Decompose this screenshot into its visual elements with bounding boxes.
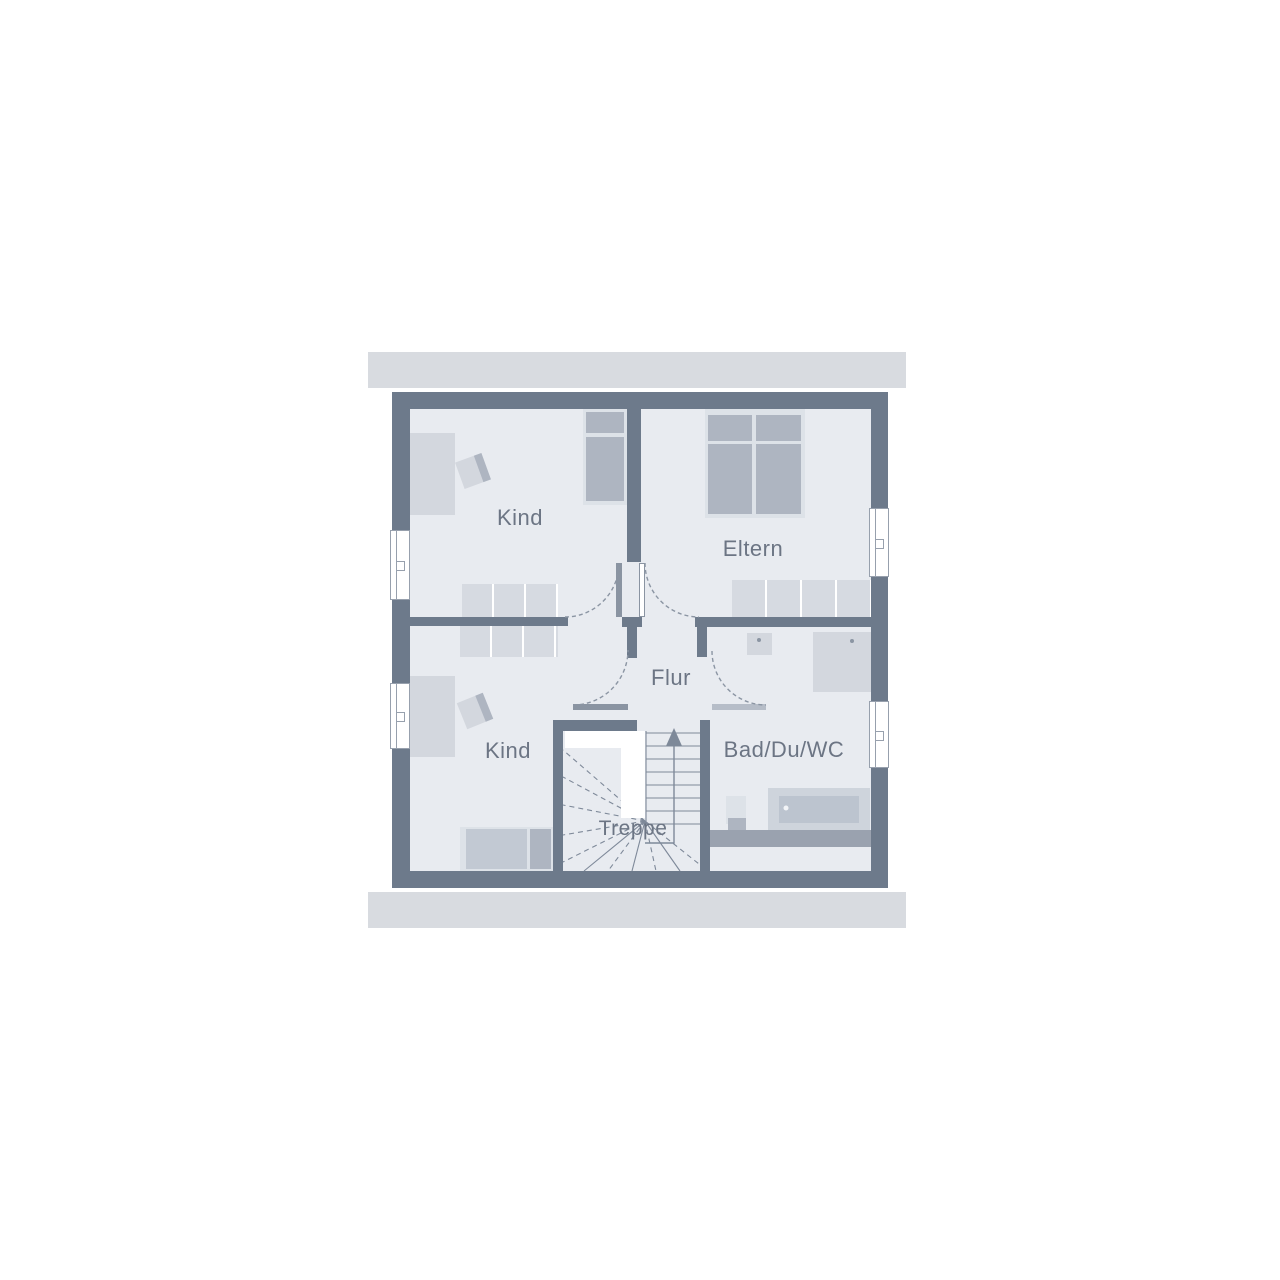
room-label-kind-top: Kind: [497, 505, 543, 531]
room-label-bad: Bad/Du/WC: [724, 737, 845, 763]
wardrobe: [732, 580, 871, 617]
washbasin: [747, 633, 772, 655]
wall-kind-kind-divider: [410, 617, 568, 626]
double-bed-mattress-right: [756, 444, 801, 514]
wall-stairwell-right: [700, 720, 710, 871]
wall-stairwell-top: [553, 720, 637, 731]
roof-edge-bottom: [368, 892, 906, 928]
double-bed-pillow-right: [756, 415, 801, 441]
bed: [460, 827, 553, 871]
window-handle: [396, 561, 405, 571]
bed-pillow: [530, 829, 551, 869]
bathtub: [768, 788, 870, 830]
room-label-flur: Flur: [651, 665, 691, 691]
window-handle: [875, 731, 884, 741]
bed-mattress: [466, 829, 527, 869]
door-leaf-bad: [712, 704, 766, 710]
bed-mattress: [586, 437, 624, 501]
double-bed-pillow-left: [708, 415, 752, 441]
shower: [813, 632, 871, 692]
window-left-upper: [390, 530, 410, 600]
door-leaf-kind-bottom: [573, 704, 628, 710]
window-right-upper: [869, 508, 889, 577]
double-bed: [705, 409, 805, 518]
wall-bad-knee: [710, 830, 871, 847]
wall-kind-eltern-divider: [627, 409, 641, 562]
wall-bad-top: [695, 617, 871, 627]
window-left-lower: [390, 683, 410, 749]
roof-edge-top: [368, 352, 906, 388]
door-leaf-eltern: [639, 563, 645, 617]
door-leaf-kind-top: [616, 563, 622, 617]
window-handle: [396, 712, 405, 722]
wardrobe: [462, 584, 558, 617]
window-right-lower: [869, 701, 889, 768]
bed: [583, 409, 627, 505]
bed-pillow: [586, 412, 624, 433]
desk: [410, 676, 455, 757]
room-label-kind-bottom: Kind: [485, 738, 531, 764]
desk: [410, 433, 455, 515]
room-label-treppe: Treppe: [599, 817, 668, 841]
window-handle: [875, 539, 884, 549]
wardrobe: [460, 625, 558, 657]
floor-plan-canvas: Kind Eltern Kind Flur Bad/Du/WC Treppe: [0, 0, 1280, 1280]
double-bed-mattress-left: [708, 444, 752, 514]
wall-flur-center-stub-lower: [627, 627, 637, 658]
bathtub-basin: [779, 796, 859, 823]
wall-bad-door-stub: [697, 627, 707, 657]
wall-stairwell-left: [553, 720, 563, 871]
wall-flur-center-stub: [622, 617, 642, 627]
room-label-eltern: Eltern: [723, 536, 783, 562]
